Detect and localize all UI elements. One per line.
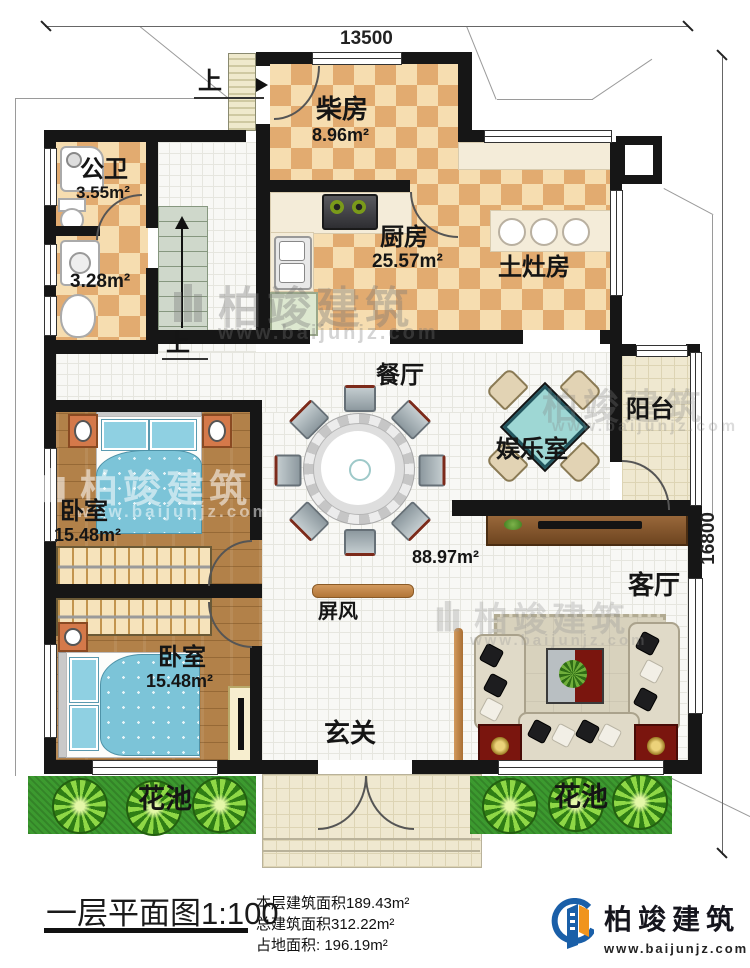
kitchen-counter [458,142,612,170]
room-label-fun: 娱乐室 [496,438,568,462]
floor-plan-canvas: 柏竣建筑 www.baijunjz.com 柏竣建筑 www.baijunjz.… [0,0,750,968]
room-label-living: 客厅 [628,572,680,598]
chimney [616,136,662,184]
dining-chair [419,455,446,487]
wall-bottom-a [44,760,92,774]
wardrobe [56,546,212,588]
porch-step-line [262,850,480,852]
label-entry: 玄关 [324,720,376,746]
stair-up-label-top: 上 [198,70,222,94]
stat-floor-area: 本层建筑面积189.43m² [256,893,409,914]
label-flower-right: 花池 [554,784,608,811]
room-label-chai: 柴房 [316,96,368,122]
wall-bed1-top [44,400,262,412]
hall-area: 88.97m² [412,548,479,566]
room-label-gongwei: 公卫 [80,158,128,182]
dining-chair [344,385,376,412]
dim-line-top [45,26,688,27]
room-area-gongwei: 3.55m² [76,184,130,201]
bedroom2-tv [238,698,244,750]
earthen-stove-burner [498,218,526,246]
porch-step-line [262,838,480,840]
window [44,644,57,738]
wall-bottom-c [412,760,498,774]
label-flower-left: 花池 [138,786,192,813]
title-block: 一层平面图1:100 [46,888,279,933]
wall-balcony-top-a [610,344,636,356]
wall-bath-divider [44,226,100,236]
entry-arrow [256,78,268,92]
basin-sink [60,294,96,338]
brand-site: www.baijunjz.com [604,941,748,956]
window [688,578,703,714]
bed1-pillow [102,420,148,450]
nightstand [202,414,232,448]
earthen-stove-burner [530,218,558,246]
wall-kitchen-north-a [458,130,484,142]
room-area-wash: 3.28m² [70,272,130,291]
brand-logo: 柏竣建筑 www.baijunjz.com [548,898,748,956]
roof-eave-line [672,778,750,819]
bed1-pillow [150,420,196,450]
wall-bottom-b [216,760,318,774]
watermark-url: www.baijunjz.com [470,632,647,649]
window [44,244,57,286]
window [498,760,664,775]
roof-eave-line [712,215,713,515]
window [484,130,612,143]
dim-label-right: 16800 [698,512,720,565]
plant-bush [612,774,668,830]
wall-bath-bottom [44,340,158,354]
wall-bottom-d [662,760,702,774]
window [610,190,623,296]
wood-divider [454,628,463,764]
plant-bush [192,777,248,833]
wall-chai-left-a [256,52,270,66]
wall-top-gongwei [44,130,246,142]
stove-burner [330,200,344,214]
gas-stove [322,194,378,230]
stair-up-label-mid: 上 [166,332,190,356]
wall-bed2-right-a [250,646,262,760]
wall-chai-bottom [256,180,410,192]
wall-kitchen-bottom-c [600,330,622,344]
room-label-bed1: 卧室 [60,500,108,524]
room-label-dining: 餐厅 [376,364,424,388]
title-underline [44,928,248,933]
label-screen: 屏风 [318,602,358,622]
earthen-stove-burner [562,218,590,246]
nightstand [68,414,98,448]
nightstand [58,622,88,652]
room-area-bed2: 15.48m² [146,672,213,690]
stair-up-underline-mid [162,358,208,360]
room-area-chai: 8.96m² [312,126,369,144]
stair-arrow-head [175,216,189,229]
tv-set [538,521,642,529]
bed2-pillow [70,706,98,750]
wall-bed-divider [44,584,262,598]
room-area-kitchen: 25.57m² [372,252,443,271]
room-label-bed2: 卧室 [158,646,206,670]
roof-eave-line [664,188,714,215]
stair-up-underline-top [194,97,264,99]
dim-label-top: 13500 [340,28,393,50]
console-plant [504,519,522,530]
coffee-table-plant [559,660,587,688]
watermark-logo-icon [432,597,464,637]
screen-bar [312,584,414,598]
plant-bush [52,778,108,834]
room-label-balcony: 阳台 [626,398,674,422]
window [44,148,57,206]
wall-bath-right-b [146,268,158,340]
bed2-pillow [70,658,98,702]
stove-burner [352,200,366,214]
dim-line-right [722,57,723,855]
roof-eave-line [497,99,593,100]
dining-chair [275,455,302,487]
dining-table-center [349,459,371,481]
room-label-tuzao: 土灶房 [498,256,570,280]
exterior-steps [228,53,256,131]
wall-bath-right-a [146,142,158,228]
roof-eave-line [15,98,16,776]
window [44,296,57,336]
sink-basin [279,241,305,261]
area-stats: 本层建筑面积189.43m² 总建筑面积312.22m² 占地面积: 196.1… [256,893,409,956]
wall-chai-right [458,52,472,142]
window [636,345,688,357]
brand-name: 柏竣建筑 [604,898,748,938]
brand-logo-icon [548,898,594,950]
stat-total-area: 总建筑面积312.22m² [256,914,409,935]
room-label-kitchen: 厨房 [380,226,428,250]
plant-bush [482,778,538,834]
stat-land-area: 占地面积: 196.19m² [256,935,409,956]
roof-eave-line [592,59,652,100]
watermark-logo-icon [168,280,208,328]
window [92,760,218,775]
window [312,52,402,65]
room-area-bed1: 15.48m² [54,526,121,544]
dining-chair [344,529,376,556]
watermark-url: www.baijunjz.com [218,322,439,345]
brand-text: 柏竣建筑 www.baijunjz.com [604,898,748,956]
plan-title: 一层平面图 [46,896,201,931]
